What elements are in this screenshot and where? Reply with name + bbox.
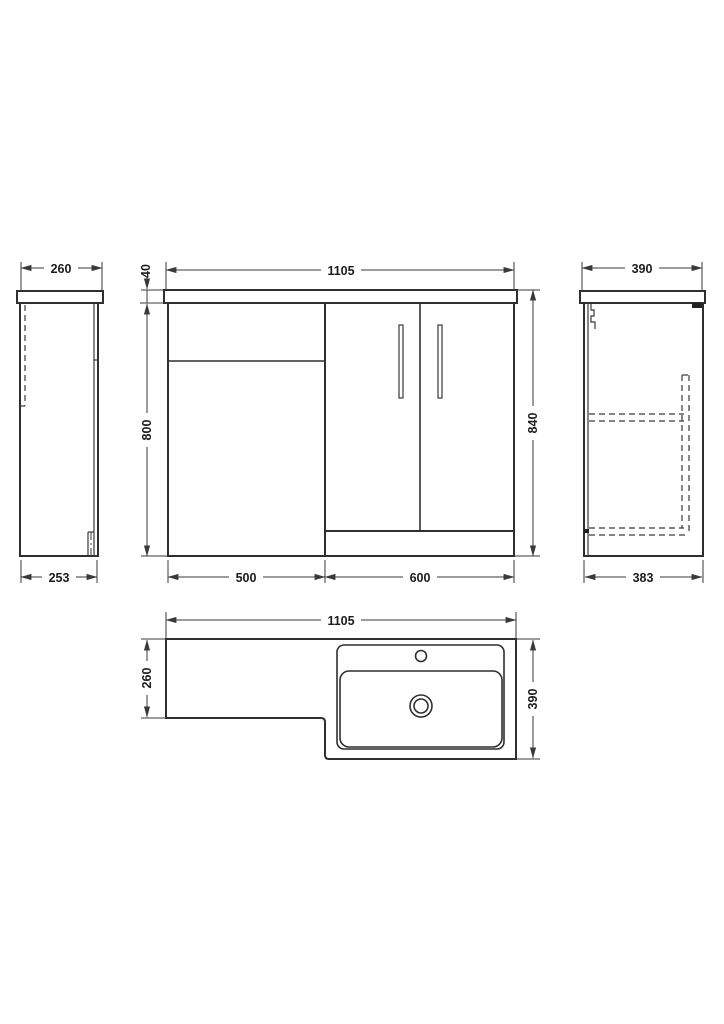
waste-drain <box>410 695 432 717</box>
right-side-view: 390 383 <box>580 261 705 585</box>
dim-label-front-500: 500 <box>236 571 257 585</box>
tap-hole <box>416 651 427 662</box>
basin-bowl <box>340 671 502 747</box>
dim-right-view-bottom-depth: 383 <box>584 560 703 585</box>
dim-label-front-600: 600 <box>410 571 431 585</box>
dim-label-left-253: 253 <box>49 571 70 585</box>
left-view-plinth-detail <box>88 532 94 556</box>
dim-front-section-widths: 500 600 <box>168 560 514 585</box>
dim-label-plan-1105: 1105 <box>327 614 354 628</box>
right-view-hidden-bottom-shelf <box>589 528 689 535</box>
dim-plan-right-depth: 390 <box>516 639 540 759</box>
technical-drawing-page: 260 253 1105 <box>0 0 724 1024</box>
right-view-hidden-back-upstand <box>682 375 689 535</box>
dim-label-plan-260: 260 <box>140 668 154 689</box>
dim-left-view-bottom-width: 253 <box>21 560 97 585</box>
dim-front-cabinet-height: 800 <box>140 304 168 556</box>
dim-label-front-1105: 1105 <box>327 264 354 278</box>
left-side-view: 260 253 <box>17 261 103 585</box>
basin-rim <box>337 645 504 749</box>
dim-label-right-383: 383 <box>633 571 654 585</box>
dim-front-overall-width: 1105 <box>166 262 514 290</box>
dim-label-plan-390: 390 <box>526 689 540 710</box>
right-view-hidden-shelf <box>589 414 684 421</box>
right-view-plinth-tick <box>584 529 589 533</box>
dim-label-left-260: 260 <box>51 262 72 276</box>
dim-label-front-40: 40 <box>139 264 153 278</box>
right-view-carcass <box>584 303 703 556</box>
vanity-technical-drawing: 260 253 1105 <box>0 0 724 1024</box>
dim-plan-left-depth: 260 <box>140 639 166 718</box>
plan-view: 1105 260 390 <box>140 612 540 759</box>
right-view-fixing-bracket <box>692 303 702 308</box>
dim-plan-overall-width: 1105 <box>166 612 516 638</box>
dim-front-overall-height: 840 <box>514 290 540 556</box>
front-view: 1105 40 800 840 <box>139 262 540 585</box>
dim-left-view-top-width: 260 <box>21 261 102 290</box>
front-carcass <box>168 303 514 556</box>
left-view-carcass <box>20 303 98 556</box>
right-view-worktop <box>580 291 705 303</box>
door-handle-right <box>438 325 442 398</box>
right-view-hinge-detail <box>591 304 595 329</box>
dim-label-front-800: 800 <box>140 420 154 441</box>
door-handle-left <box>399 325 403 398</box>
dim-right-view-top-depth: 390 <box>582 261 702 291</box>
dim-label-front-840: 840 <box>526 413 540 434</box>
dim-front-worktop-thickness: 40 <box>139 264 164 303</box>
left-view-worktop <box>17 291 103 303</box>
dim-label-right-390: 390 <box>632 262 653 276</box>
front-worktop <box>164 290 517 303</box>
